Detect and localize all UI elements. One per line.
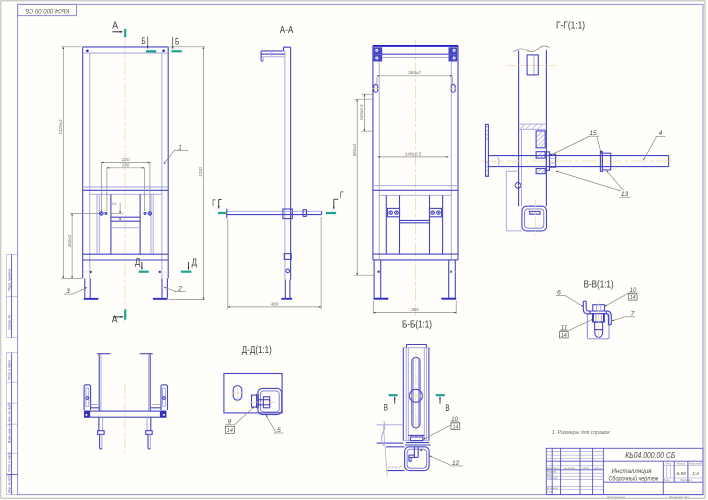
svg-text:В-В(1:1): В-В(1:1) bbox=[584, 279, 614, 290]
svg-text:Б: Б bbox=[141, 36, 145, 46]
svg-text:Дата: Дата bbox=[593, 466, 602, 470]
svg-text:1120±2: 1120±2 bbox=[58, 119, 63, 134]
svg-text:Лист: Лист bbox=[662, 478, 671, 482]
svg-text:480: 480 bbox=[271, 301, 279, 306]
svg-text:Перв. примен.: Перв. примен. bbox=[7, 268, 11, 291]
svg-text:365±2: 365±2 bbox=[408, 70, 421, 75]
svg-text:180: 180 bbox=[122, 162, 130, 167]
svg-text:6.59: 6.59 bbox=[677, 471, 687, 477]
svg-text:1:4: 1:4 bbox=[692, 471, 699, 477]
svg-text:3: 3 bbox=[66, 288, 70, 295]
svg-text:В: В bbox=[445, 403, 449, 414]
svg-text:Г: Г bbox=[212, 198, 216, 209]
svg-text:Инв. № подл.: Инв. № подл. bbox=[7, 473, 11, 493]
svg-text:Изм: Изм bbox=[547, 466, 552, 470]
svg-text:КЬ04.000.00 СБ: КЬ04.000.00 СБ bbox=[625, 451, 675, 460]
svg-text:Д: Д bbox=[192, 257, 198, 268]
svg-text:14: 14 bbox=[630, 295, 636, 301]
svg-text:Инсталляция: Инсталляция bbox=[612, 468, 652, 475]
svg-text:Подп. и дата: Подп. и дата bbox=[7, 360, 11, 380]
svg-text:А: А bbox=[112, 20, 118, 32]
svg-text:Формат А1: Формат А1 bbox=[669, 495, 689, 499]
svg-text:2: 2 bbox=[177, 286, 182, 293]
svg-text:Т.контр.: Т.контр. bbox=[547, 476, 558, 480]
svg-text:Утв.: Утв. bbox=[547, 489, 553, 493]
svg-text:14: 14 bbox=[561, 333, 567, 339]
svg-text:Г: Г bbox=[340, 190, 344, 201]
svg-text:1. Размеры для справок: 1. Размеры для справок bbox=[552, 430, 611, 436]
svg-text:1: 1 bbox=[178, 144, 182, 151]
svg-text:Д-Д(1:1): Д-Д(1:1) bbox=[242, 345, 272, 356]
svg-text:220: 220 bbox=[121, 157, 130, 162]
svg-text:350±2: 350±2 bbox=[67, 234, 72, 247]
svg-text:Б: Б bbox=[175, 37, 179, 47]
svg-text:Подп.: Подп. bbox=[583, 466, 590, 470]
svg-text:Сборочный чертеж: Сборочный чертеж bbox=[609, 475, 659, 483]
svg-text:Копировал: Копировал bbox=[607, 495, 625, 499]
svg-text:1220: 1220 bbox=[198, 167, 203, 177]
svg-text:Подп. и дата: Подп. и дата bbox=[7, 452, 11, 472]
svg-text:240±0.5: 240±0.5 bbox=[359, 104, 364, 121]
svg-text:14: 14 bbox=[112, 201, 117, 206]
svg-text:А-А: А-А bbox=[280, 25, 294, 36]
svg-text:865±2: 865±2 bbox=[352, 143, 357, 156]
svg-text:Б-Б(1:1): Б-Б(1:1) bbox=[402, 320, 432, 331]
svg-text:14: 14 bbox=[453, 424, 459, 430]
svg-text:Масштаб: Масштаб bbox=[689, 461, 702, 465]
svg-text:Инв. № дубл.: Инв. № дубл. bbox=[7, 402, 11, 422]
svg-text:КЬ04.000.00 СБ: КЬ04.000.00 СБ bbox=[25, 7, 69, 13]
svg-text:Лит.: Лит. bbox=[665, 461, 673, 465]
svg-text:Масса: Масса bbox=[677, 461, 685, 465]
svg-text:№ докум.: № докум. bbox=[564, 466, 576, 470]
svg-text:380: 380 bbox=[411, 307, 419, 312]
svg-text:Д: Д bbox=[135, 257, 141, 268]
svg-text:4: 4 bbox=[659, 130, 663, 137]
svg-text:Лист: Лист bbox=[552, 466, 561, 470]
svg-text:14: 14 bbox=[227, 428, 233, 434]
svg-text:Листов 1: Листов 1 bbox=[679, 478, 693, 482]
svg-text:В: В bbox=[384, 402, 388, 413]
svg-text:Взам. инв. №: Взам. инв. № bbox=[7, 423, 11, 443]
svg-text:Справ. №: Справ. № bbox=[7, 314, 11, 330]
svg-text:А: А bbox=[112, 314, 118, 326]
svg-text:Г-Г(1:1): Г-Г(1:1) bbox=[556, 21, 585, 32]
svg-text:149±0.5: 149±0.5 bbox=[405, 151, 422, 156]
